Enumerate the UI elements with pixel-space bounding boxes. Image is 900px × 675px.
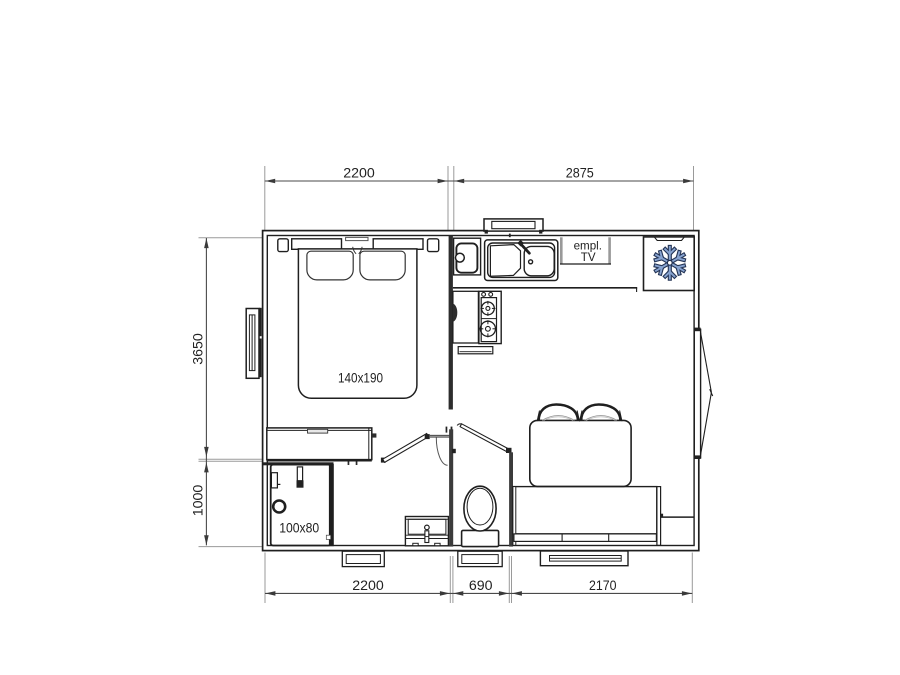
svg-text:1000: 1000 — [190, 485, 206, 517]
svg-text:690: 690 — [469, 578, 493, 594]
svg-text:2875: 2875 — [566, 165, 594, 181]
svg-text:2170: 2170 — [589, 578, 617, 594]
svg-text:2200: 2200 — [352, 578, 384, 594]
svg-text:140x190: 140x190 — [338, 371, 383, 386]
svg-text:100x80: 100x80 — [279, 520, 319, 535]
svg-text:3650: 3650 — [190, 333, 206, 365]
svg-text:2200: 2200 — [343, 165, 375, 181]
svg-text:TV: TV — [581, 251, 596, 264]
